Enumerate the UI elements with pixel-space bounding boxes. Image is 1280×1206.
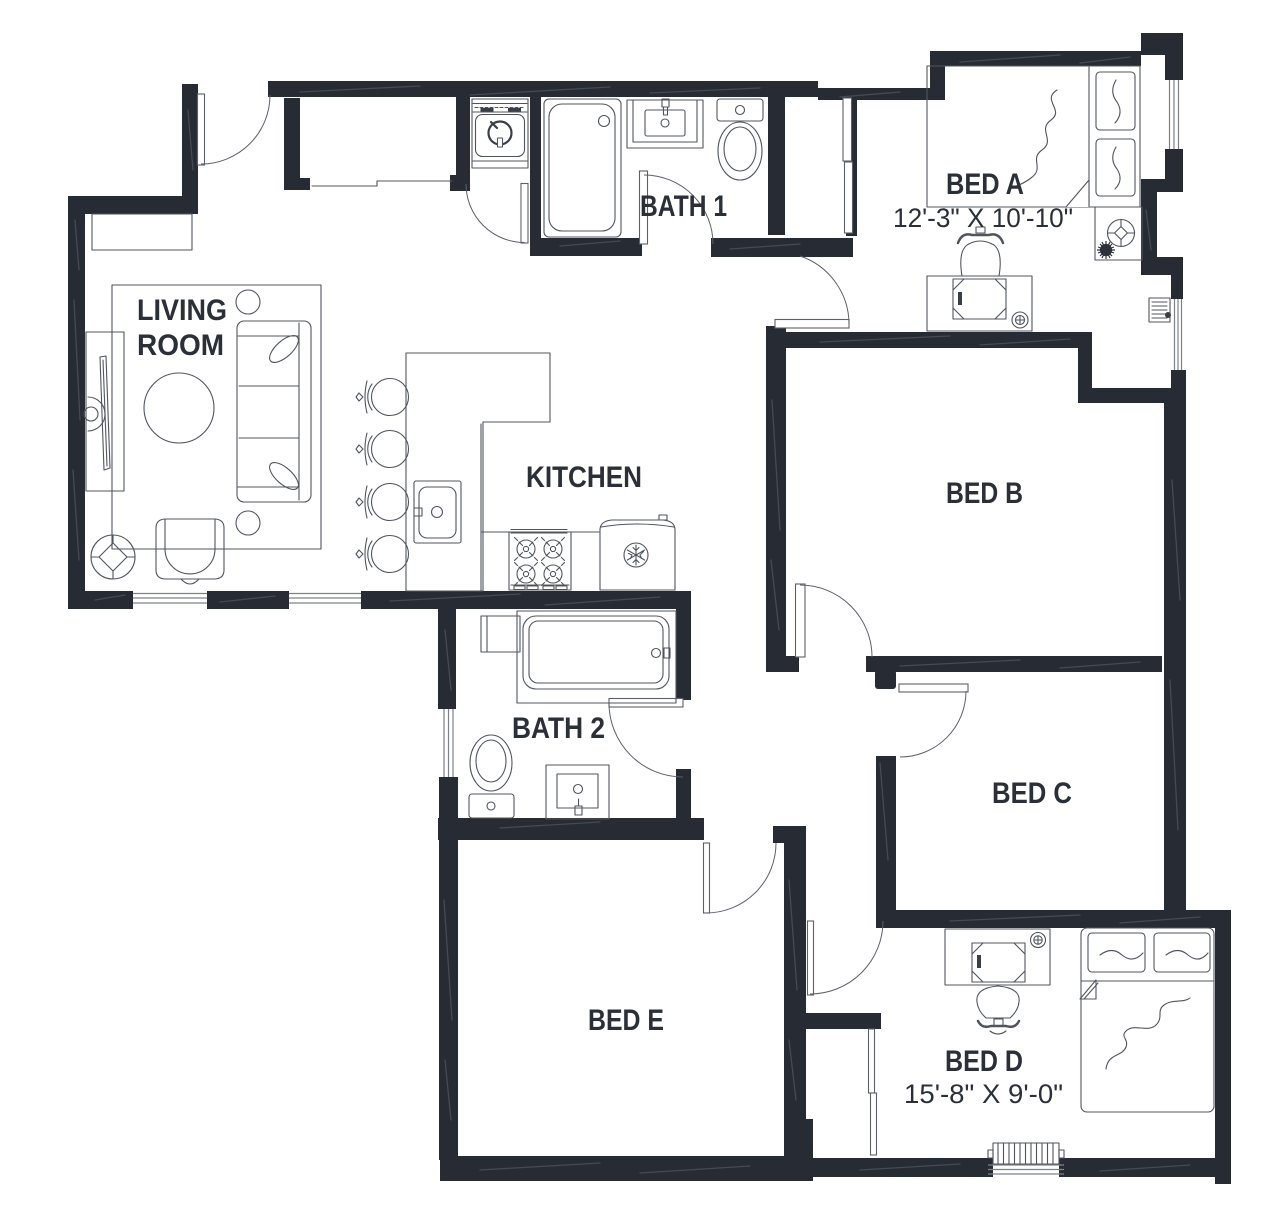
svg-text:BED D: BED D (945, 1045, 1023, 1078)
svg-text:BATH 1: BATH 1 (640, 190, 727, 223)
svg-text:LIVING: LIVING (137, 294, 227, 327)
svg-text:KITCHEN: KITCHEN (526, 461, 642, 494)
svg-text:BATH 2: BATH 2 (512, 712, 605, 745)
svg-text:15'-8" X 9'-0": 15'-8" X 9'-0" (904, 1079, 1063, 1109)
svg-text:BED B: BED B (946, 477, 1023, 510)
svg-text:12'-3" X 10'-10": 12'-3" X 10'-10" (893, 203, 1073, 233)
svg-text:ROOM: ROOM (137, 329, 224, 362)
svg-text:BED E: BED E (588, 1004, 664, 1037)
svg-text:BED A: BED A (946, 168, 1024, 201)
svg-text:BED C: BED C (992, 777, 1072, 810)
